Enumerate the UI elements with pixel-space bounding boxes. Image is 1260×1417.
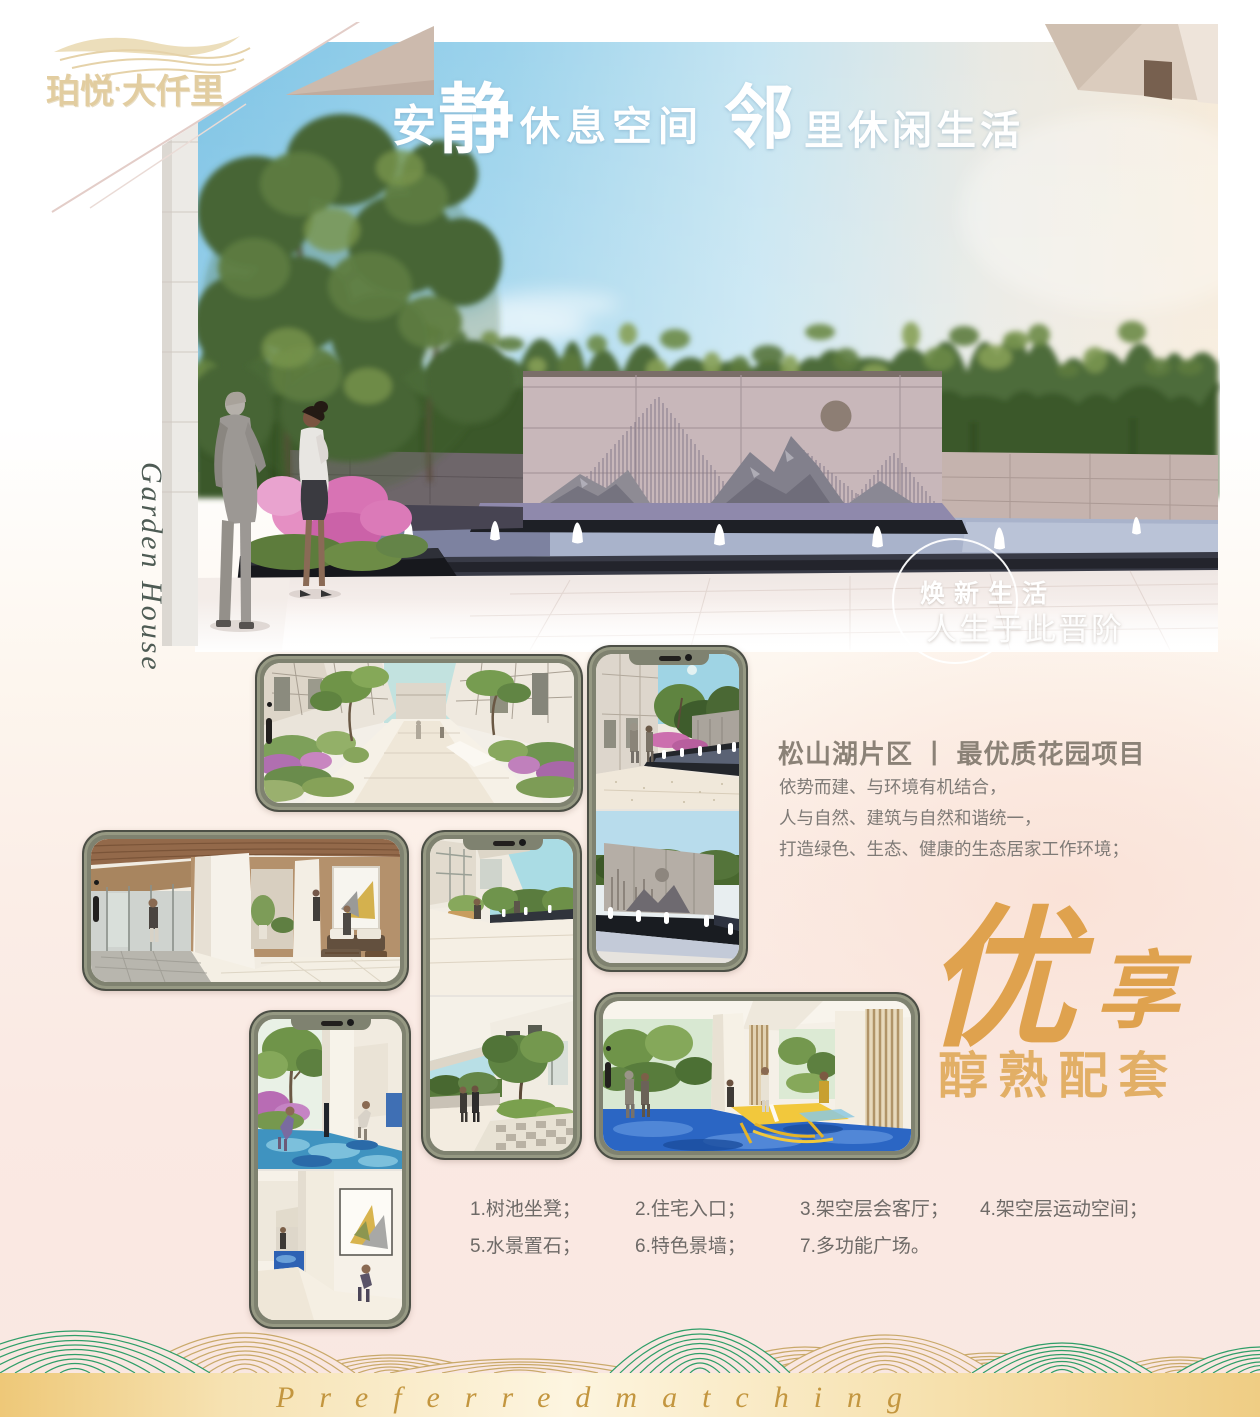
svg-text:Preferredmatching: Preferredmatching	[275, 1381, 927, 1414]
